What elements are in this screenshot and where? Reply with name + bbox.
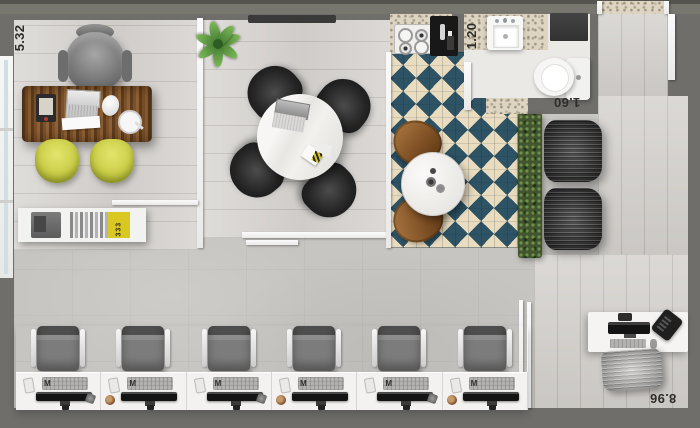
- webcam: [618, 313, 632, 321]
- lounge-chair: [544, 188, 602, 250]
- monitor: [36, 392, 92, 401]
- keyboard-badge: M: [44, 378, 51, 389]
- desk-phone: [364, 377, 376, 394]
- workstation: M: [272, 326, 357, 410]
- dimension-label-open-office: 8.96: [640, 390, 686, 406]
- keyboard-badge: M: [385, 378, 392, 389]
- workstation-row: M M M: [16, 326, 528, 410]
- printer: [31, 212, 61, 238]
- workstation-desk: M: [443, 372, 528, 410]
- bathroom-door: [464, 62, 471, 110]
- meeting-sliding-door: [246, 240, 298, 245]
- task-chair: [287, 326, 341, 371]
- keyboard: [610, 339, 646, 348]
- card-reader: [36, 94, 56, 122]
- yellow-book: 333: [108, 212, 130, 238]
- corridor-floor-mid: [598, 96, 688, 258]
- office-floor-plan: 333: [0, 0, 700, 428]
- workstation-desk: M: [187, 372, 272, 410]
- dimension-label-office: 5.32: [12, 16, 28, 60]
- task-chair: [372, 326, 426, 371]
- workstation-desk: M: [101, 372, 186, 410]
- monitor-stand: [624, 334, 636, 338]
- books: [70, 212, 110, 238]
- workstation: M: [187, 326, 272, 410]
- mug: [105, 395, 115, 405]
- workstation: M: [16, 326, 101, 410]
- workstation: M: [357, 326, 442, 410]
- left-window-mullion: [0, 128, 13, 131]
- desk-phone: [449, 377, 461, 394]
- keyboard: M: [213, 377, 259, 390]
- guest-chair: [90, 139, 134, 183]
- desk-phone: [193, 377, 205, 394]
- corridor-floor-top: [598, 12, 668, 96]
- left-window-mullion: [0, 200, 13, 203]
- plant: [202, 22, 250, 66]
- book-label: 333: [116, 215, 123, 237]
- desk-phone: [279, 377, 291, 394]
- monitor: [377, 392, 433, 401]
- desk-phone: [108, 377, 120, 394]
- entry-door-post: [597, 1, 602, 14]
- desk-tray: [116, 108, 142, 132]
- keyboard: M: [127, 377, 173, 390]
- kitchen-sink: [430, 16, 458, 56]
- entry-threshold: [602, 1, 664, 14]
- keyboard-badge: M: [129, 378, 136, 389]
- workstation-desk: M: [357, 372, 442, 410]
- workstation-desk: M: [272, 372, 357, 410]
- bottom-wall: [0, 408, 700, 428]
- workstation-desk: M: [16, 372, 101, 410]
- credenza: 333: [18, 208, 146, 242]
- office-sliding-door: [112, 200, 198, 205]
- desk-item: [85, 393, 97, 405]
- wall-tv: [248, 15, 336, 23]
- workstation: M: [443, 326, 528, 410]
- monitor: [463, 392, 519, 401]
- keyboard: M: [469, 377, 515, 390]
- mug: [447, 395, 457, 405]
- keyboard-badge: M: [300, 378, 307, 389]
- dimension-label-bath-width: 1.20: [464, 14, 480, 58]
- task-chair: [31, 326, 85, 371]
- keyboard: M: [42, 377, 88, 390]
- desk-item: [426, 393, 438, 405]
- keyboard: M: [383, 377, 429, 390]
- top-wall: [0, 0, 700, 14]
- monitor: [121, 392, 177, 401]
- hedge: [518, 114, 542, 258]
- workstation: M: [101, 326, 186, 410]
- guest-chair: [35, 139, 79, 183]
- monitor: [608, 322, 650, 334]
- keyboard-badge: M: [471, 378, 478, 389]
- cooktop: [394, 24, 432, 54]
- table-documents: [303, 142, 333, 168]
- desk-phone: [23, 377, 35, 394]
- monitor: [292, 392, 348, 401]
- lounge-chair: [544, 120, 602, 182]
- right-window: [668, 14, 675, 80]
- bathroom-threshold: [486, 98, 528, 114]
- keyboard-badge: M: [215, 378, 222, 389]
- left-window-glass: [4, 60, 8, 274]
- bathroom-sink: [487, 16, 523, 50]
- task-chair: [202, 326, 256, 371]
- bathroom-shelf: [550, 13, 588, 41]
- entry-door-post: [664, 1, 669, 14]
- task-chair: [116, 326, 170, 371]
- keyboard: M: [298, 377, 344, 390]
- chair-armrest: [122, 50, 132, 82]
- dimension-label-bath-length: 1.60: [546, 94, 588, 110]
- mug: [276, 395, 286, 405]
- desk-item: [256, 393, 268, 405]
- meeting-south-wall: [242, 232, 390, 238]
- cafe-table: [401, 152, 465, 216]
- chair-armrest: [58, 50, 68, 82]
- monitor: [207, 392, 263, 401]
- chair-back: [66, 32, 124, 90]
- task-chair: [458, 326, 512, 371]
- laptop: [269, 97, 312, 135]
- manager-chair: [601, 348, 664, 392]
- kitchen-west-partition: [386, 52, 391, 248]
